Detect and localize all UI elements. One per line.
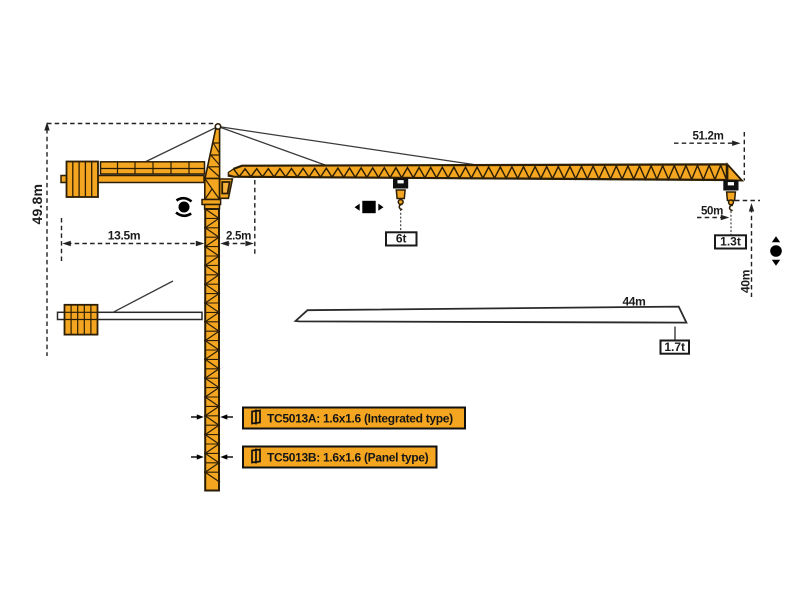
svg-text:1.7t: 1.7t xyxy=(664,340,685,354)
svg-text:6t: 6t xyxy=(396,232,407,246)
svg-text:1.3t: 1.3t xyxy=(720,235,741,249)
svg-text:2.5m: 2.5m xyxy=(226,231,251,243)
svg-text:44m: 44m xyxy=(622,295,645,309)
svg-text:51.2m: 51.2m xyxy=(692,131,723,143)
svg-text:40m: 40m xyxy=(739,270,753,293)
svg-text:49.8m: 49.8m xyxy=(29,184,45,225)
svg-text:50m: 50m xyxy=(701,206,723,218)
svg-text:TC5013B: 1.6x1.6 (Panel type): TC5013B: 1.6x1.6 (Panel type) xyxy=(267,451,429,465)
svg-text:13.5m: 13.5m xyxy=(108,229,141,243)
svg-text:TC5013A: 1.6x1.6 (Integrated t: TC5013A: 1.6x1.6 (Integrated type) xyxy=(267,412,453,426)
